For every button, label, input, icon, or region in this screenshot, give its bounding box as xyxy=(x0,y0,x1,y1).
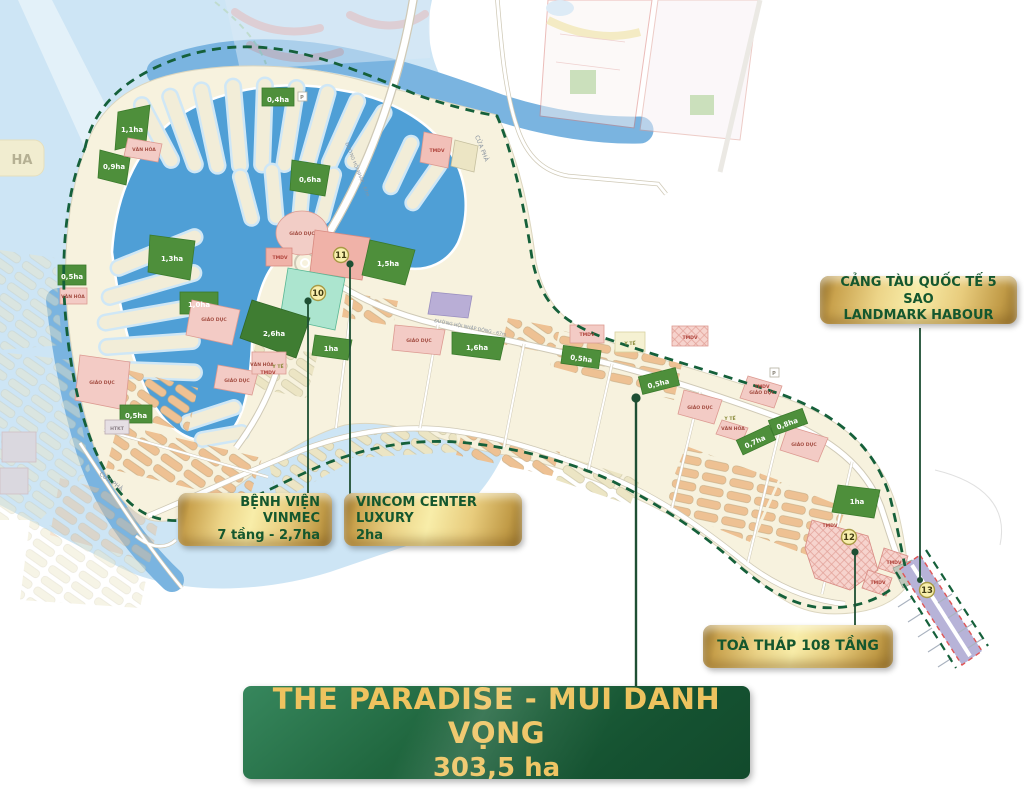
svg-text:HA: HA xyxy=(12,153,33,168)
callout-tower-108[interactable]: TOÀ THÁP 108 TẦNG xyxy=(703,625,893,668)
area-label: 0,5ha xyxy=(125,412,147,420)
edge-fragment-label: HA xyxy=(0,140,44,176)
zone-commerce-label: TMDV xyxy=(260,370,276,376)
svg-text:11: 11 xyxy=(335,251,347,261)
marker-11[interactable]: 11 xyxy=(334,248,349,263)
marker-12[interactable]: 12 xyxy=(842,530,857,545)
zone-commerce-label: TMDV xyxy=(429,148,445,154)
callout-vinmec-hospital[interactable]: BỆNH VIỆN VINMEC 7 tầng - 2,7ha xyxy=(178,493,332,546)
callout-harbour-line1: CẢNG TÀU QUỐC TẾ 5 SAO xyxy=(820,275,1017,308)
zone-commerce-label: TMDV xyxy=(272,255,288,261)
area-label: 1,1ha xyxy=(121,126,143,134)
zone-education-label: GIÁO DỤC xyxy=(224,377,250,384)
area-label: 0,5ha xyxy=(61,273,83,281)
parking-label: P xyxy=(772,371,776,377)
zone-commerce-label: TMDV xyxy=(870,580,886,586)
callout-landmark-harbour[interactable]: CẢNG TÀU QUỐC TẾ 5 SAO LANDMARK HABOUR xyxy=(820,276,1017,324)
masterplan-image: 0,4ha 1,1ha 0,9ha 0,6ha 1,3ha 0,5ha 1,0h… xyxy=(0,0,1024,807)
project-banner-area: 303,5 ha xyxy=(433,753,560,779)
callout-vinmec-line1: BỆNH VIỆN VINMEC xyxy=(178,495,332,528)
project-banner: THE PARADISE - MŨI DANH VỌNG 303,5 ha xyxy=(243,686,750,779)
zone-education-label: GIÁO DỤC xyxy=(791,441,817,448)
area-label: 1ha xyxy=(324,345,339,353)
svg-text:13: 13 xyxy=(921,586,933,596)
parking-label: P xyxy=(300,95,304,101)
marker-10[interactable]: 10 xyxy=(311,286,326,301)
callout-vincom-line1: VINCOM CENTER LUXURY xyxy=(344,495,522,528)
zone-education-label: GIÁO DỤC xyxy=(89,379,115,386)
zone-education-label: GIÁO DỤC xyxy=(289,230,315,237)
zone-culture-label: VĂN HÓA xyxy=(721,425,745,432)
area-label: 1,3ha xyxy=(161,255,183,263)
zone-culture-label: VĂN HÓA xyxy=(61,293,85,300)
zone-culture-label: VĂN HÓA xyxy=(250,361,274,368)
zone-education-label: GIÁO DỤC xyxy=(406,337,432,344)
zone-education-label: GIÁO DỤC xyxy=(749,389,775,396)
area-label: 0,4ha xyxy=(267,96,289,104)
zone-commerce-label: TMDV xyxy=(754,384,770,390)
zone-culture-label: VĂN HÓA xyxy=(132,146,156,153)
svg-text:12: 12 xyxy=(843,533,855,543)
svg-text:10: 10 xyxy=(312,289,324,299)
zone-education-label: GIÁO DỤC xyxy=(687,404,713,411)
harbour-pier xyxy=(896,550,988,668)
callout-vincom-center[interactable]: VINCOM CENTER LUXURY 2ha xyxy=(344,493,522,546)
zone-commerce-label: TMDV xyxy=(579,332,595,338)
marker-13[interactable]: 13 xyxy=(920,583,935,598)
zone-commerce-label: TMDV xyxy=(822,523,838,529)
area-label: 0,6ha xyxy=(299,176,321,184)
area-label: 1ha xyxy=(850,498,865,506)
area-label: 1,6ha xyxy=(466,344,488,352)
callout-vincom-line2: 2ha xyxy=(344,528,522,545)
zone-education-label: GIÁO DỤC xyxy=(201,316,227,323)
area-label: 1,5ha xyxy=(377,260,399,268)
callout-tower-line1: TOÀ THÁP 108 TẦNG xyxy=(703,638,893,656)
zone-commerce-label: TMDV xyxy=(886,560,902,566)
callout-harbour-line2: LANDMARK HABOUR xyxy=(820,308,1017,325)
area-label: 2,6ha xyxy=(263,330,285,338)
area-label: 1,0ha xyxy=(188,301,210,309)
callout-vinmec-line2: 7 tầng - 2,7ha xyxy=(178,528,332,545)
area-label: 0,9ha xyxy=(103,163,125,171)
project-banner-title: THE PARADISE - MŨI DANH VỌNG xyxy=(243,686,750,750)
zone-infra-label: HTKT xyxy=(110,426,125,432)
faint-curve-near-pier xyxy=(935,470,1002,545)
zone-commerce-label: TMDV xyxy=(682,335,698,341)
